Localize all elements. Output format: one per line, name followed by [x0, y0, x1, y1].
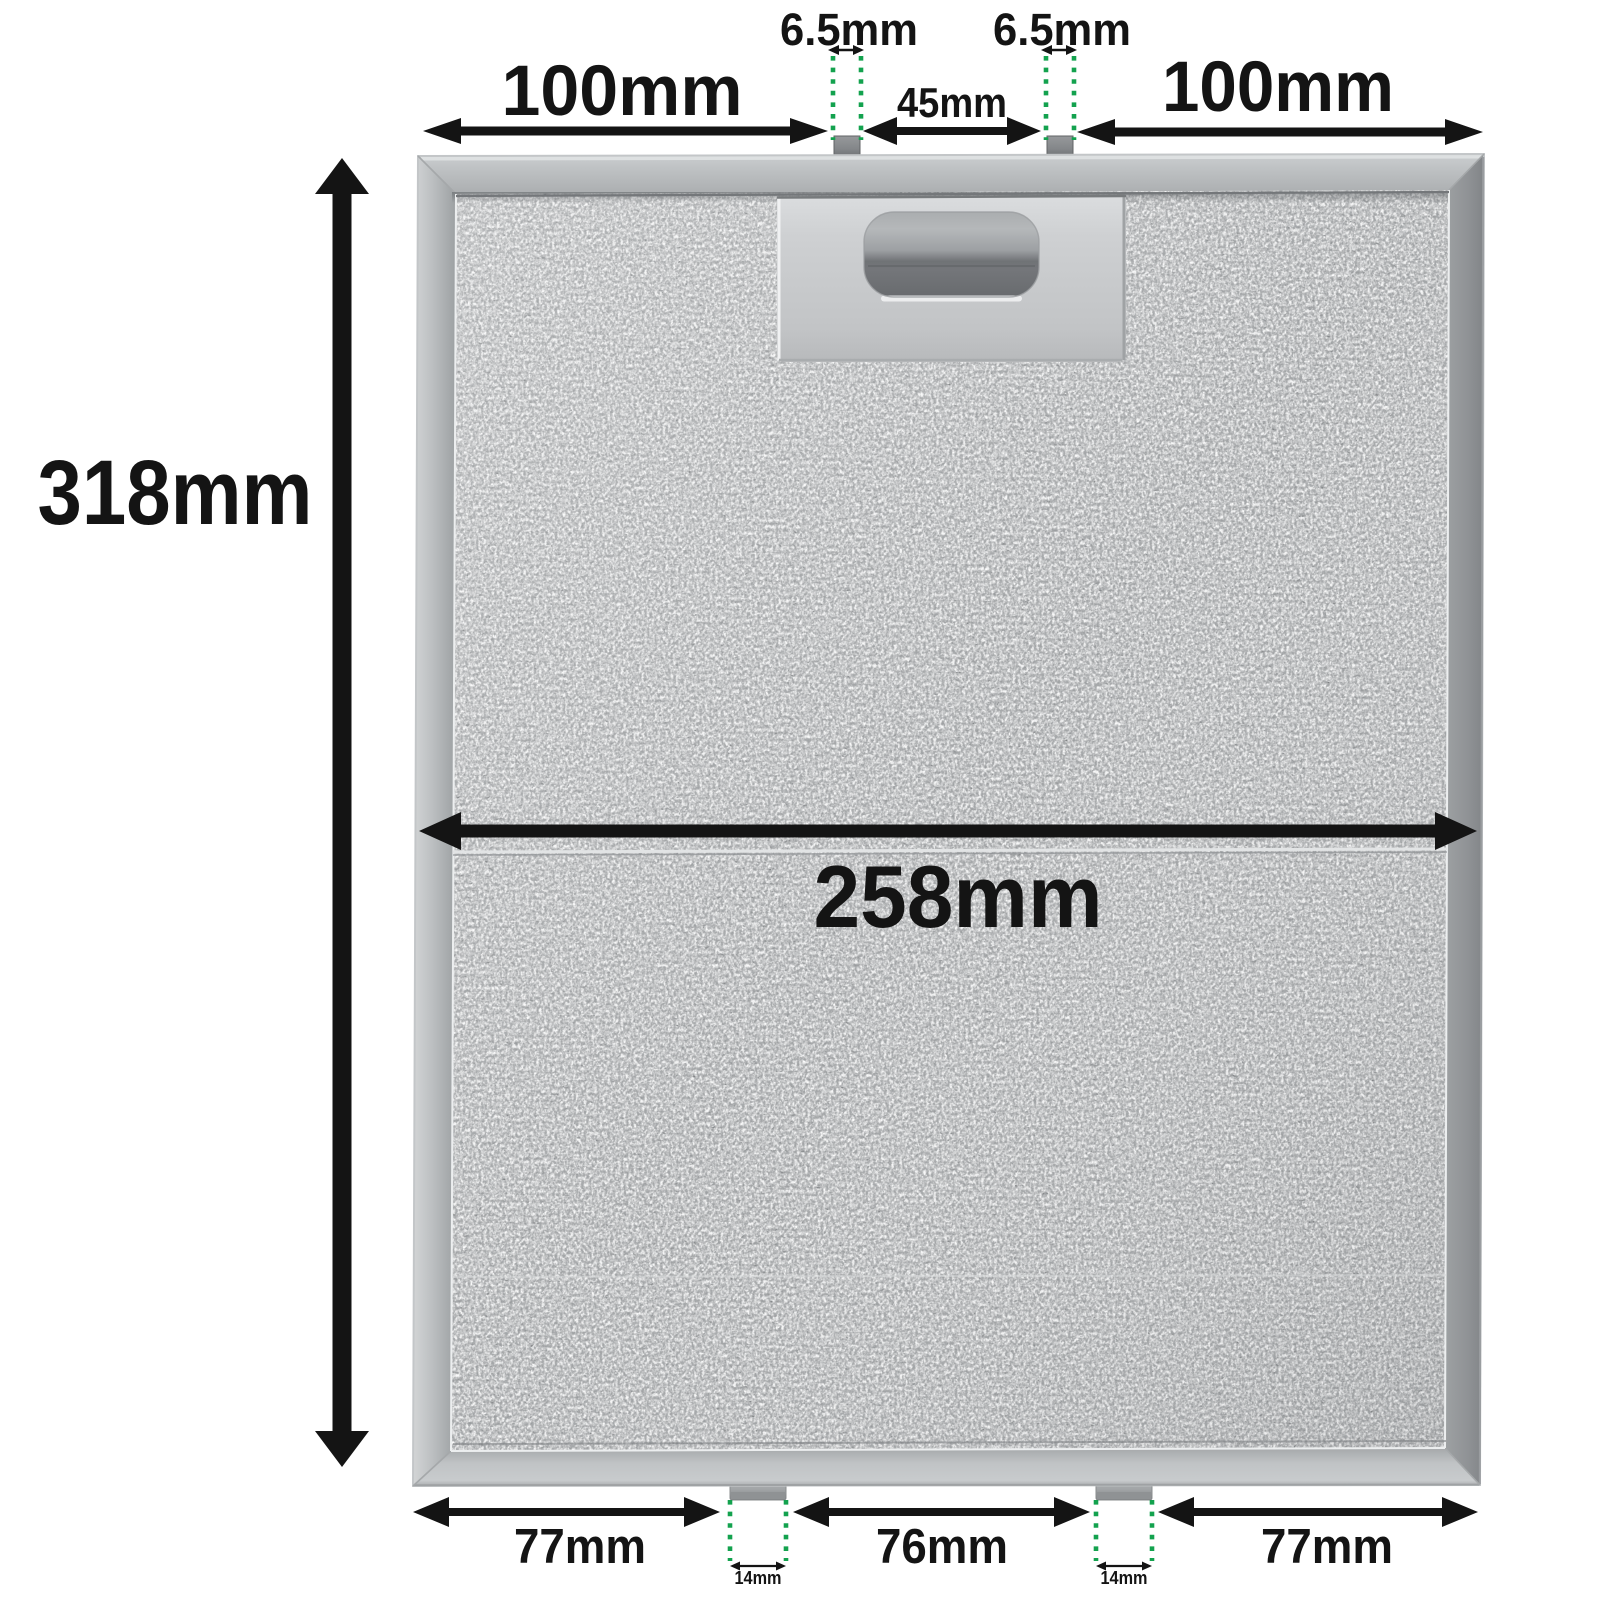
svg-text:77mm: 77mm — [514, 1520, 646, 1574]
svg-text:100mm: 100mm — [502, 52, 743, 131]
svg-text:6.5mm: 6.5mm — [993, 4, 1131, 55]
svg-text:318mm: 318mm — [38, 442, 313, 544]
svg-text:45mm: 45mm — [897, 79, 1007, 126]
svg-text:77mm: 77mm — [1261, 1520, 1393, 1574]
svg-text:6.5mm: 6.5mm — [780, 4, 918, 55]
svg-text:14mm: 14mm — [735, 1568, 782, 1588]
svg-text:14mm: 14mm — [1101, 1568, 1148, 1588]
svg-text:258mm: 258mm — [814, 847, 1103, 946]
svg-text:100mm: 100mm — [1162, 48, 1394, 127]
svg-text:76mm: 76mm — [876, 1520, 1008, 1574]
